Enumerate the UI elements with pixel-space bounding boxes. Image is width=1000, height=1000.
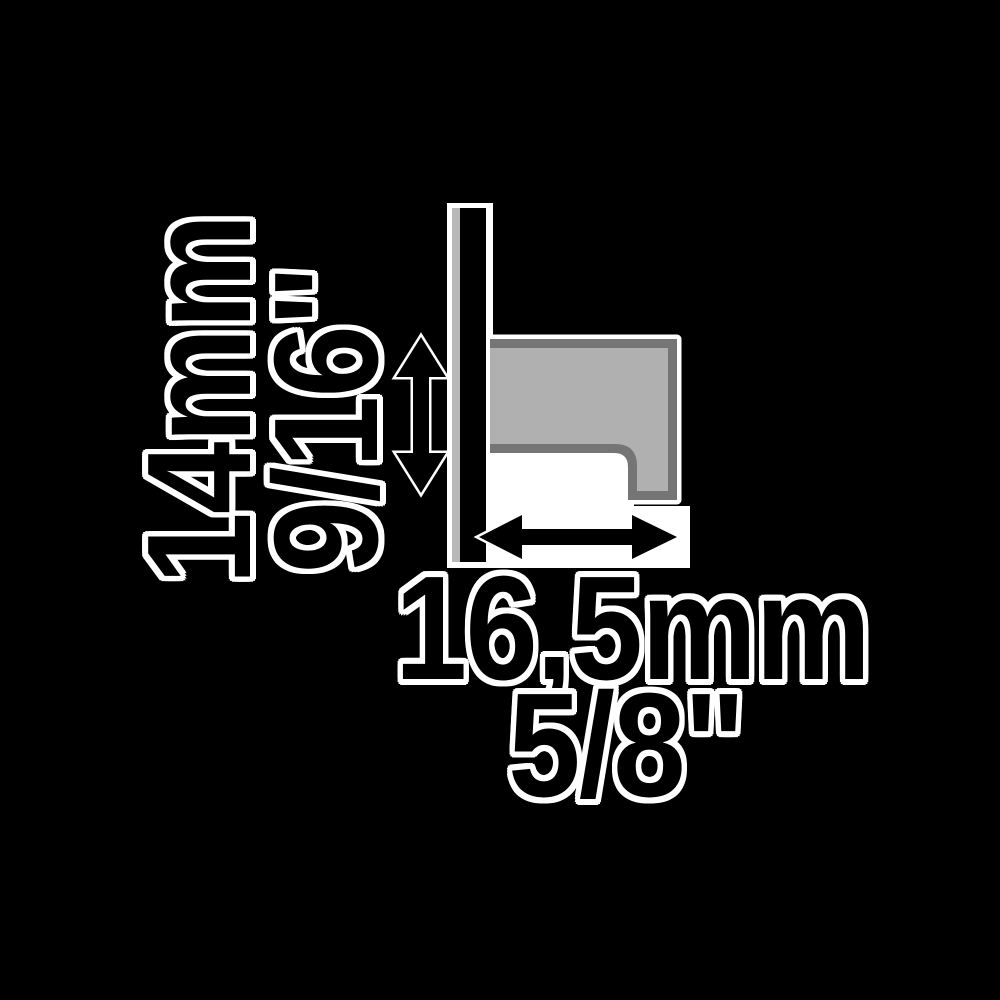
- dimension-diagram: 14mm 9/16" 16,5mm 5/8": [0, 0, 1000, 1000]
- width-inch-label: 5/8": [508, 672, 744, 820]
- height-inch-label: 9/16": [253, 267, 401, 573]
- panel-shadow: [452, 208, 461, 562]
- panel: [460, 208, 486, 562]
- panel-bar: [452, 208, 486, 562]
